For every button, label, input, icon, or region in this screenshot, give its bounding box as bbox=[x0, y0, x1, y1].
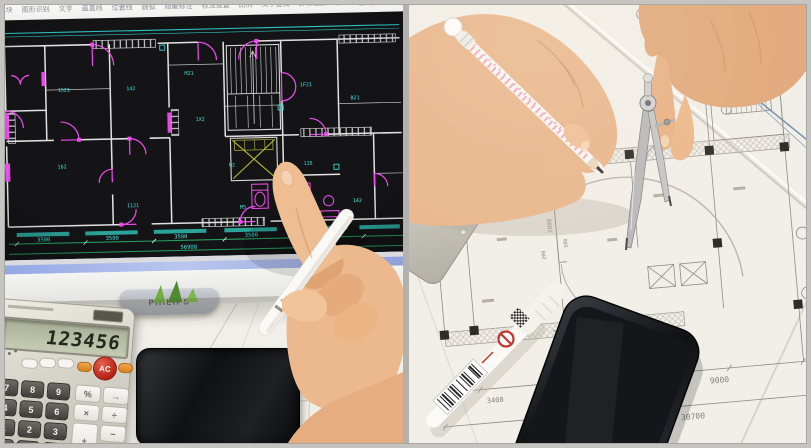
right-photo-blueprint-work: 9000 30700 3400 2000 500 200 bbox=[409, 0, 811, 448]
number-key[interactable]: 0 bbox=[0, 438, 14, 448]
memory-key[interactable] bbox=[21, 358, 39, 369]
blueprint-scene: 9000 30700 3400 2000 500 200 bbox=[409, 0, 811, 448]
menu-item[interactable]: 隐藏标注 bbox=[165, 1, 193, 12]
monitor: 图块图形识别文字画直线位置线圆弧隐藏标注标注设置比例文字查找屏幕缩放打印编号视图… bbox=[0, 0, 403, 319]
number-key[interactable]: 8 bbox=[20, 380, 44, 399]
calculator: 123456 AC 789456123000. % → × ÷ + − = bbox=[0, 298, 136, 448]
menu-item[interactable]: 位置线 bbox=[112, 3, 133, 13]
left-photo-cad-monitor: 图块图形识别文字画直线位置线圆弧隐藏标注标注设置比例文字查找屏幕缩放打印编号视图… bbox=[0, 0, 403, 448]
divide-key[interactable]: ÷ bbox=[101, 405, 128, 424]
pencil-eraser bbox=[444, 18, 462, 36]
menu-item[interactable]: 比例 bbox=[238, 0, 252, 10]
number-key[interactable]: 4 bbox=[0, 398, 17, 417]
menu-item[interactable]: 画直线 bbox=[82, 3, 103, 13]
number-key[interactable]: 6 bbox=[45, 402, 69, 421]
number-key[interactable]: 5 bbox=[19, 400, 43, 419]
memory-key[interactable] bbox=[57, 358, 75, 369]
memory-key[interactable] bbox=[39, 357, 57, 368]
orange-key[interactable] bbox=[77, 361, 93, 372]
screen-vignette bbox=[0, 11, 403, 260]
number-key[interactable]: . bbox=[42, 442, 66, 448]
arrow-key[interactable]: → bbox=[102, 386, 129, 405]
plus-key[interactable]: + bbox=[70, 422, 99, 448]
number-pad: 789456123000. bbox=[0, 378, 71, 448]
minus-key[interactable]: − bbox=[99, 424, 126, 443]
menu-item[interactable]: 图块 bbox=[0, 5, 13, 15]
dim-9000: 9000 bbox=[710, 375, 730, 386]
menu-item[interactable]: 图形识别 bbox=[22, 4, 50, 15]
multiply-key[interactable]: × bbox=[73, 403, 100, 422]
number-key[interactable]: 3 bbox=[43, 422, 67, 441]
dim-3400: 3400 bbox=[486, 396, 503, 405]
menu-item[interactable]: 文字 bbox=[59, 4, 73, 14]
percent-key[interactable]: % bbox=[74, 384, 101, 403]
number-key[interactable]: 1 bbox=[0, 418, 16, 437]
cad-screen: 1521 142 M21 1F21 162 1121 M5 115 B21 14… bbox=[0, 11, 403, 260]
menubar-icon-cyan[interactable] bbox=[379, 0, 385, 5]
dim-200: 200 bbox=[541, 250, 548, 260]
number-key[interactable]: 2 bbox=[17, 420, 41, 439]
smartphone-left bbox=[136, 348, 300, 447]
menu-item[interactable]: 屏幕缩放 bbox=[298, 0, 326, 9]
calculator-display-value: 123456 bbox=[45, 327, 123, 355]
photo-divider bbox=[403, 0, 409, 448]
number-key[interactable]: 9 bbox=[46, 382, 70, 401]
menu-item[interactable]: 标注设置 bbox=[202, 0, 230, 11]
fingernail bbox=[661, 135, 670, 147]
menu-item[interactable]: 打印 bbox=[335, 0, 349, 8]
number-key[interactable]: 7 bbox=[0, 378, 19, 397]
number-key[interactable]: 00 bbox=[16, 440, 40, 448]
composite-photo: 图块图形识别文字画直线位置线圆弧隐藏标注标注设置比例文字查找屏幕缩放打印编号视图… bbox=[0, 0, 811, 448]
cad-floorplan: 1521 142 M21 1F21 162 1121 M5 115 B21 14… bbox=[0, 11, 403, 260]
orange-key[interactable] bbox=[118, 363, 134, 374]
menubar-icon-blue[interactable] bbox=[359, 0, 365, 5]
menubar-icon-red[interactable] bbox=[369, 0, 375, 5]
menu-item[interactable]: 文字查找 bbox=[261, 0, 289, 10]
menu-item[interactable]: 圆弧 bbox=[142, 2, 156, 12]
dim-500: 500 bbox=[563, 238, 570, 248]
calculator-solar-panel bbox=[93, 309, 124, 322]
